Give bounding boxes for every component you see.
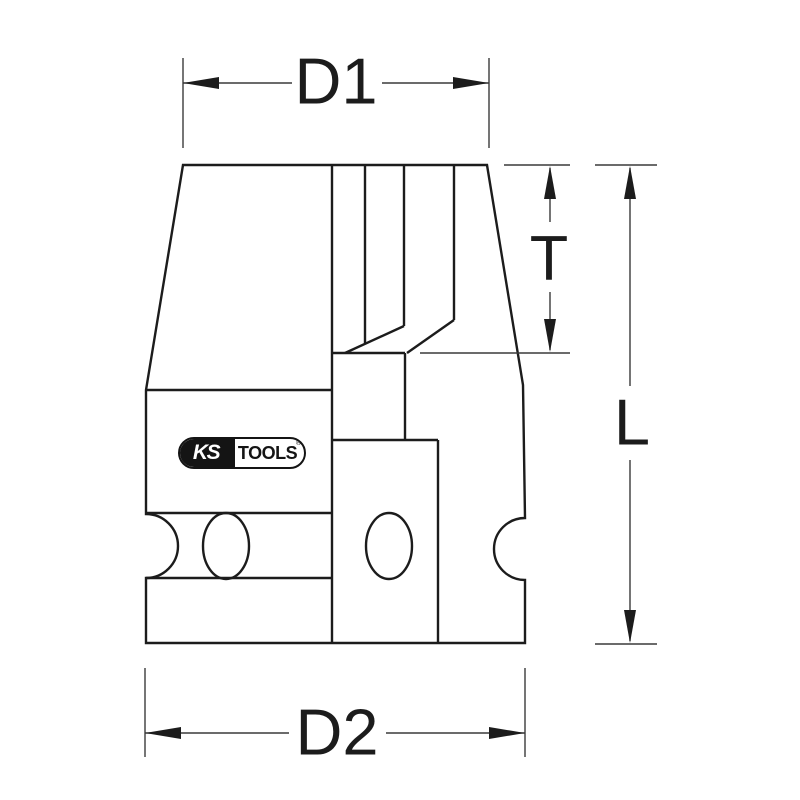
d2-arrow-left: [145, 727, 181, 739]
pin-hole-middle: [366, 513, 412, 579]
dimension-label-d2: D2: [295, 700, 378, 765]
l-arrow-down: [624, 610, 636, 643]
logo-ks-text: KS: [180, 439, 235, 467]
ks-tools-logo: KS TOOLS ®: [178, 437, 306, 469]
d1-arrow-left: [183, 77, 219, 89]
hex-chamfer-left: [345, 326, 404, 353]
d1-arrow-right: [453, 77, 489, 89]
l-arrow-up: [624, 166, 636, 199]
t-arrow-down: [544, 319, 556, 352]
socket-line-drawing: [0, 0, 800, 800]
dimension-label-t: T: [530, 228, 568, 291]
dimension-label-l: L: [614, 390, 650, 455]
dimension-label-d1: D1: [294, 49, 377, 114]
pin-hole-left: [203, 513, 249, 579]
socket-outline: [146, 165, 525, 643]
registered-trademark-icon: ®: [296, 440, 301, 447]
logo-tools-text: TOOLS: [235, 439, 304, 467]
d2-arrow-right: [489, 727, 525, 739]
hex-chamfer-right: [407, 320, 454, 353]
t-arrow-up: [544, 166, 556, 199]
technical-drawing-canvas: D1 T L D2 KS TOOLS ®: [0, 0, 800, 800]
